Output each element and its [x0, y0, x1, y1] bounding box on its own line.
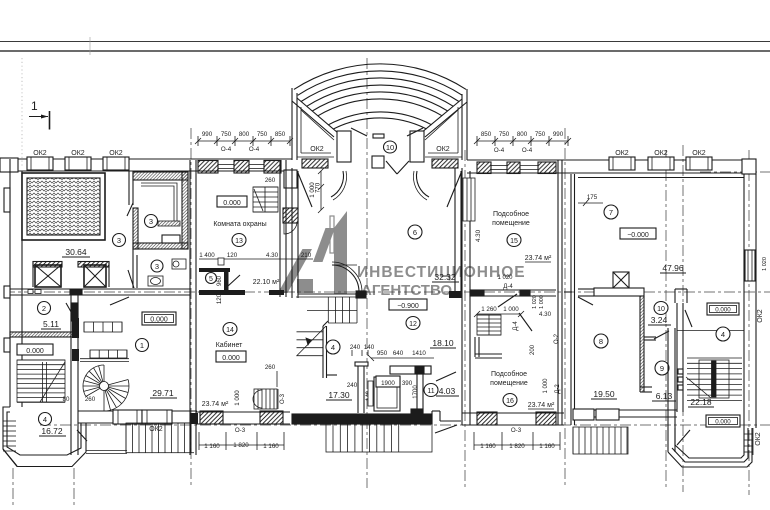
svg-text:990: 990 — [553, 131, 564, 138]
svg-text:О-3: О-3 — [235, 427, 246, 434]
svg-text:990: 990 — [202, 131, 213, 138]
svg-text:22.18: 22.18 — [690, 397, 712, 407]
svg-text:3.24: 3.24 — [651, 315, 668, 325]
svg-text:1700: 1700 — [413, 385, 419, 399]
svg-text:640: 640 — [393, 350, 404, 357]
svg-text:ОК2: ОК2 — [692, 150, 706, 157]
svg-text:4: 4 — [721, 330, 725, 339]
svg-text:0.000: 0.000 — [223, 200, 241, 207]
svg-text:19.50: 19.50 — [593, 389, 615, 399]
svg-text:260: 260 — [85, 396, 96, 403]
svg-text:1 160: 1 160 — [204, 443, 220, 450]
svg-text:Д-4: Д-4 — [513, 321, 519, 331]
svg-text:0.000: 0.000 — [150, 317, 168, 324]
svg-text:помещение: помещение — [490, 380, 528, 387]
svg-text:23.74 м²: 23.74 м² — [528, 402, 555, 409]
svg-text:240: 240 — [350, 344, 361, 351]
svg-text:ОК2: ОК2 — [149, 426, 163, 433]
svg-text:750: 750 — [221, 131, 232, 138]
svg-text:О-3: О-3 — [280, 393, 286, 404]
svg-text:800: 800 — [517, 131, 528, 138]
svg-text:1410: 1410 — [412, 350, 426, 357]
svg-text:1 160: 1 160 — [539, 443, 555, 450]
svg-text:О-2: О-2 — [554, 333, 560, 344]
svg-text:1 260: 1 260 — [481, 306, 497, 313]
svg-text:80: 80 — [63, 396, 70, 403]
svg-text:10: 10 — [386, 143, 394, 152]
svg-text:О-4: О-4 — [249, 146, 260, 153]
svg-text:4.30: 4.30 — [266, 252, 279, 259]
svg-text:16: 16 — [506, 398, 514, 405]
svg-text:1 000: 1 000 — [539, 295, 545, 309]
svg-text:−0.900: −0.900 — [397, 303, 419, 310]
svg-text:ОК2: ОК2 — [436, 146, 450, 153]
svg-text:4: 4 — [43, 415, 47, 424]
svg-text:260: 260 — [265, 177, 276, 184]
svg-text:АГЕНТСТВО: АГЕНТСТВО — [361, 282, 452, 299]
svg-text:32.32: 32.32 — [434, 272, 456, 282]
svg-text:0.000: 0.000 — [715, 307, 731, 314]
svg-text:6.13: 6.13 — [656, 391, 673, 401]
svg-text:Кабинет: Кабинет — [216, 341, 243, 349]
svg-text:помещение: помещение — [492, 220, 530, 227]
svg-text:23.74 м²: 23.74 м² — [525, 255, 552, 262]
svg-text:ОК2: ОК2 — [71, 150, 85, 157]
svg-text:1: 1 — [31, 99, 38, 113]
svg-text:1 000: 1 000 — [543, 378, 549, 394]
svg-text:960: 960 — [217, 275, 223, 286]
svg-text:1 020: 1 020 — [532, 295, 538, 309]
svg-text:18.10: 18.10 — [432, 338, 454, 348]
svg-text:12: 12 — [409, 321, 417, 328]
svg-text:5.11: 5.11 — [43, 319, 59, 329]
svg-text:140: 140 — [364, 344, 375, 351]
svg-text:390: 390 — [402, 380, 413, 387]
svg-text:850: 850 — [481, 131, 492, 138]
svg-text:14: 14 — [226, 327, 234, 334]
svg-text:7: 7 — [609, 208, 613, 217]
svg-text:1 000: 1 000 — [503, 306, 519, 313]
svg-text:О-4: О-4 — [221, 146, 232, 153]
svg-text:750: 750 — [535, 131, 546, 138]
svg-text:2: 2 — [42, 304, 46, 313]
svg-text:1 820: 1 820 — [233, 442, 249, 449]
svg-text:Подсобное: Подсобное — [493, 210, 529, 218]
svg-text:240: 240 — [347, 382, 358, 389]
svg-text:О-4: О-4 — [494, 147, 505, 154]
svg-text:1 000: 1 000 — [234, 390, 241, 406]
svg-text:0.000: 0.000 — [715, 419, 731, 426]
svg-text:800: 800 — [239, 131, 250, 138]
svg-text:Комната охраны: Комната охраны — [213, 221, 266, 228]
svg-text:ОК2: ОК2 — [109, 150, 123, 157]
svg-text:260: 260 — [265, 364, 276, 371]
svg-text:23.74 м²: 23.74 м² — [202, 401, 229, 408]
svg-text:1900: 1900 — [381, 380, 395, 387]
svg-text:ОК2: ОК2 — [33, 150, 47, 157]
svg-text:210: 210 — [301, 252, 312, 259]
svg-text:5: 5 — [209, 276, 213, 283]
svg-text:1 160: 1 160 — [480, 443, 496, 450]
svg-text:ОК2: ОК2 — [755, 432, 762, 446]
svg-text:Подсобное: Подсобное — [491, 370, 527, 378]
svg-text:О-4: О-4 — [522, 147, 533, 154]
svg-text:0.000: 0.000 — [222, 355, 240, 362]
svg-text:13: 13 — [235, 238, 243, 245]
svg-text:1 160: 1 160 — [263, 443, 279, 450]
svg-text:3: 3 — [149, 217, 153, 226]
svg-text:Д-4: Д-4 — [503, 284, 513, 290]
svg-text:О-3: О-3 — [511, 427, 522, 434]
svg-text:16.72: 16.72 — [41, 426, 63, 436]
svg-text:15: 15 — [510, 238, 518, 245]
svg-text:ОК2: ОК2 — [757, 309, 764, 323]
svg-text:ОК2: ОК2 — [615, 150, 629, 157]
svg-text:ОК2: ОК2 — [310, 146, 324, 153]
svg-text:1 020: 1 020 — [762, 257, 768, 271]
svg-text:22.10 м²: 22.10 м² — [253, 279, 280, 286]
svg-text:0.000: 0.000 — [26, 348, 44, 355]
svg-text:4.30: 4.30 — [539, 311, 552, 318]
svg-text:4.30: 4.30 — [475, 229, 482, 242]
svg-text:200: 200 — [530, 344, 536, 355]
svg-text:3: 3 — [117, 236, 121, 245]
svg-text:29.71: 29.71 — [152, 388, 174, 398]
svg-text:1 020: 1 020 — [497, 275, 513, 281]
svg-text:1 400: 1 400 — [199, 252, 215, 259]
svg-text:6: 6 — [413, 228, 417, 237]
svg-text:750: 750 — [257, 131, 268, 138]
svg-text:4: 4 — [331, 343, 335, 352]
svg-text:17.30: 17.30 — [328, 390, 350, 400]
svg-text:−0.000: −0.000 — [627, 232, 649, 239]
svg-text:850: 850 — [275, 131, 286, 138]
svg-text:1: 1 — [140, 341, 144, 350]
svg-text:1 820: 1 820 — [509, 443, 525, 450]
svg-text:3: 3 — [155, 262, 159, 271]
svg-text:8: 8 — [599, 337, 603, 346]
svg-text:ОК2: ОК2 — [654, 150, 668, 157]
svg-text:47.96: 47.96 — [662, 263, 684, 273]
svg-text:750: 750 — [499, 131, 510, 138]
svg-text:11: 11 — [427, 388, 434, 395]
svg-text:950: 950 — [377, 350, 388, 357]
svg-text:4.03: 4.03 — [439, 386, 456, 396]
svg-text:30.64: 30.64 — [65, 247, 87, 257]
svg-text:9: 9 — [660, 364, 664, 373]
svg-text:120: 120 — [227, 252, 238, 259]
svg-text:10: 10 — [657, 306, 665, 313]
